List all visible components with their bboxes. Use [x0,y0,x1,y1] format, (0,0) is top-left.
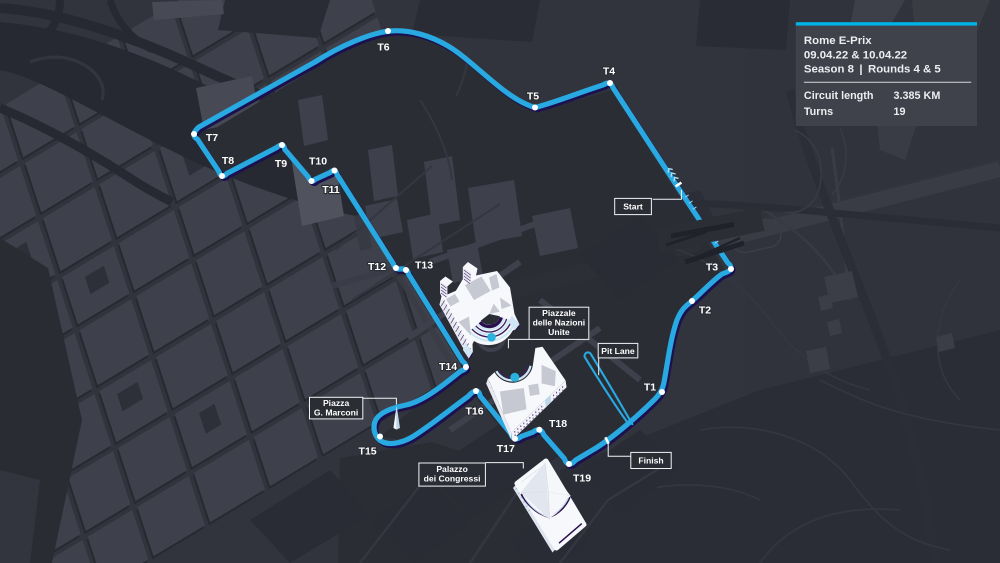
svg-text:T10: T10 [309,156,327,168]
svg-text:T8: T8 [222,155,234,167]
svg-text:T9: T9 [275,158,287,170]
svg-text:Palazzo: Palazzo [436,464,468,474]
svg-text:Turns: Turns [804,106,833,118]
svg-text:Season 8 | Rounds 4 & 5: Season 8 | Rounds 4 & 5 [804,64,942,76]
svg-text:delle Nazioni: delle Nazioni [533,318,586,328]
svg-text:T4: T4 [603,66,615,78]
svg-text:T13: T13 [415,260,433,272]
svg-text:T19: T19 [573,473,591,485]
svg-text:T7: T7 [206,132,218,144]
svg-text:T17: T17 [497,443,515,455]
svg-text:G. Marconi: G. Marconi [314,407,358,417]
svg-text:T15: T15 [359,445,377,457]
svg-text:T16: T16 [465,406,483,418]
svg-text:T6: T6 [377,42,389,54]
svg-text:dei Congressi: dei Congressi [424,474,481,484]
svg-text:Piazzale: Piazzale [542,308,576,318]
svg-text:09.04.22 & 10.04.22: 09.04.22 & 10.04.22 [804,50,907,62]
svg-text:T14: T14 [439,361,457,373]
svg-text:Pit Lane: Pit Lane [601,346,635,356]
svg-text:T12: T12 [368,261,386,273]
svg-text:Unite: Unite [548,327,570,337]
svg-text:Rome E-Prix: Rome E-Prix [804,35,872,47]
svg-text:T11: T11 [322,184,340,196]
svg-text:3.385 KM: 3.385 KM [894,90,941,102]
svg-text:T5: T5 [527,91,539,103]
svg-text:T1: T1 [644,382,656,394]
svg-text:T3: T3 [706,262,718,274]
svg-text:Circuit length: Circuit length [804,90,874,102]
svg-text:19: 19 [894,106,906,118]
svg-text:T2: T2 [699,305,711,317]
svg-text:T18: T18 [549,418,567,430]
svg-text:Finish: Finish [638,456,663,466]
svg-text:Start: Start [623,202,643,212]
